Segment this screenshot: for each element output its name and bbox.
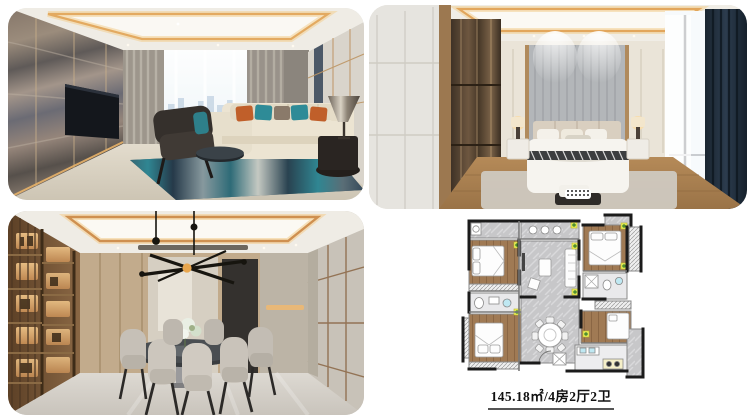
dining-room-photo bbox=[8, 211, 364, 415]
floor-plan: 145.18㎡/4房2厅2卫 bbox=[455, 211, 647, 410]
navy-curtain bbox=[705, 9, 747, 209]
plan-master-bed bbox=[589, 231, 621, 265]
plan-side-balcony bbox=[629, 227, 641, 271]
bedroom-photo bbox=[369, 5, 747, 209]
plan-bed-3 bbox=[475, 323, 503, 357]
coffee-table bbox=[196, 147, 244, 163]
living-room-photo bbox=[8, 8, 364, 200]
floor-plan-drawing bbox=[455, 211, 647, 383]
living-room-illustration bbox=[8, 8, 364, 200]
bedroom-illustration bbox=[369, 5, 747, 209]
bed bbox=[527, 121, 629, 193]
plan-dining-table bbox=[532, 317, 568, 353]
plan-rear-balcony bbox=[627, 329, 643, 377]
collage-canvas: 145.18㎡/4房2厅2卫 bbox=[0, 0, 756, 420]
plan-toilet-1 bbox=[475, 298, 484, 309]
plan-stove bbox=[603, 359, 623, 369]
dining-room-illustration bbox=[8, 211, 364, 415]
plan-basin bbox=[529, 226, 537, 234]
plan-bed-2 bbox=[472, 246, 504, 276]
plan-bed-4 bbox=[607, 313, 629, 339]
plan-toilet-2 bbox=[603, 280, 611, 290]
floor-plan-caption: 145.18㎡/4房2厅2卫 bbox=[488, 390, 615, 410]
plan-tv bbox=[522, 253, 525, 271]
